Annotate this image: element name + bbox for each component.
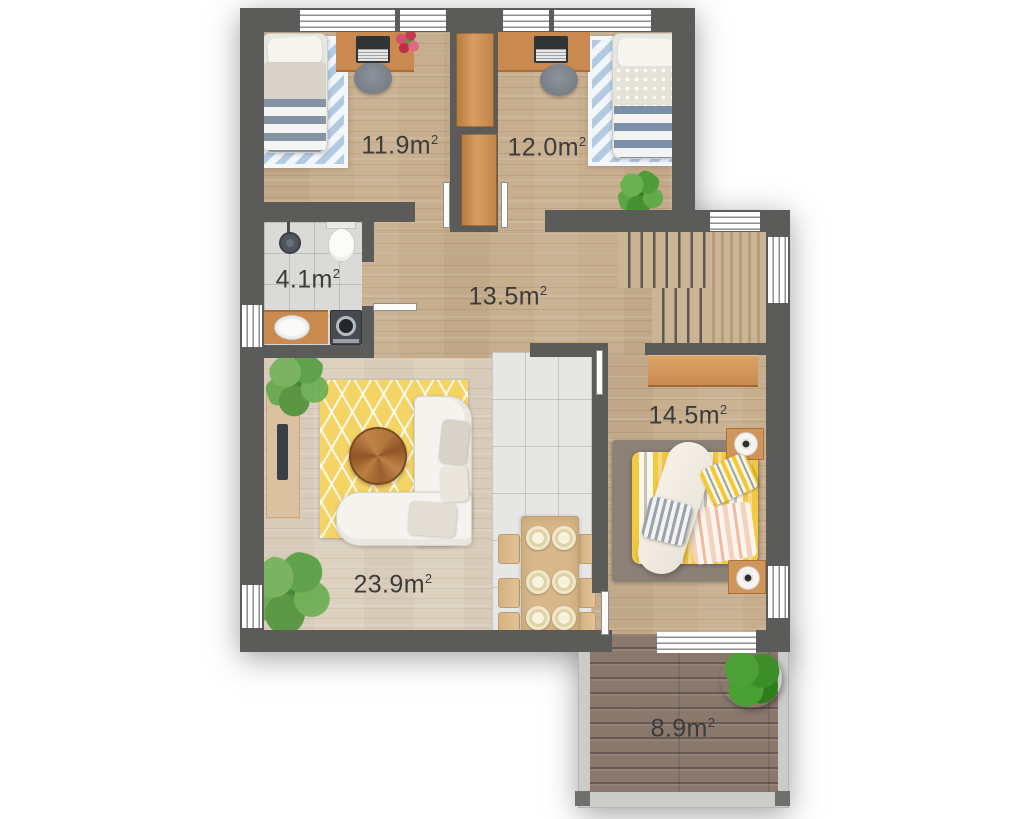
room-area-label: 23.9m2 [353, 571, 432, 600]
door-leaf [373, 303, 417, 311]
bed-duvet-dotted [614, 66, 678, 110]
washing-machine [330, 310, 362, 345]
area-sup: 2 [425, 571, 433, 586]
area-text: 12.0m [507, 134, 578, 162]
toilet-bowl [328, 228, 355, 262]
terrace-post [575, 791, 590, 806]
dining-chair [498, 534, 520, 564]
laptop [356, 36, 390, 63]
sofa-pillow [439, 465, 469, 503]
area-sup: 2 [579, 134, 587, 149]
lamp-shade-top [741, 439, 751, 449]
window [554, 10, 651, 31]
built-in-wardrobe [456, 33, 494, 127]
stair-flight-lower [652, 288, 712, 343]
wall [672, 8, 695, 232]
sofa-pillow [407, 500, 457, 537]
window [768, 566, 788, 618]
wall [645, 343, 766, 355]
place-setting [552, 526, 576, 550]
bed-blanket-striped [264, 99, 326, 152]
bed-pillow [617, 37, 674, 69]
area-sup: 2 [720, 402, 728, 417]
terrace-door-leaf [601, 591, 609, 635]
window [710, 212, 760, 231]
table-lamp [736, 566, 760, 590]
shower-head [279, 232, 301, 254]
place-setting [552, 606, 576, 630]
area-sup: 2 [431, 132, 439, 147]
window [242, 585, 262, 628]
laptop-keyboard [358, 49, 388, 61]
floor-plan: 11.9m2 12.0m2 4.1m2 13.5m2 14.5m2 23.9m2… [0, 0, 1024, 819]
stair-flight-upper [618, 232, 712, 288]
wardrobe [648, 355, 758, 387]
built-in-wardrobe [461, 134, 497, 226]
sink [274, 315, 310, 340]
area-text: 13.5m [468, 283, 539, 311]
window [768, 237, 788, 303]
window [300, 10, 395, 31]
place-setting [526, 606, 550, 630]
stair-landing [712, 232, 766, 343]
door-leaf [596, 350, 603, 395]
window [400, 10, 446, 31]
lamp-shade-top [743, 573, 753, 583]
window [242, 305, 262, 347]
laptop [534, 36, 568, 63]
area-text: 8.9m [651, 715, 708, 743]
window [503, 10, 549, 31]
area-sup: 2 [333, 266, 341, 281]
room-area-label: 13.5m2 [468, 283, 547, 312]
wall [530, 343, 592, 357]
tv [277, 424, 288, 480]
area-text: 4.1m [276, 266, 333, 294]
round-coffee-table [349, 427, 407, 485]
area-text: 11.9m [361, 132, 431, 160]
terrace-post [775, 791, 790, 806]
sofa-pillow [438, 419, 470, 466]
wall [545, 210, 672, 232]
place-setting [526, 526, 550, 550]
door-leaf [443, 182, 450, 228]
washing-machine-panel [333, 339, 359, 343]
table-lamp [734, 432, 758, 456]
area-text: 23.9m [353, 571, 424, 599]
room-area-label: 8.9m2 [651, 715, 716, 744]
laptop-keyboard [536, 49, 566, 61]
potted-plant [266, 352, 330, 418]
area-sup: 2 [708, 715, 716, 730]
bed-duvet [264, 62, 326, 104]
wall [240, 630, 612, 652]
place-setting [526, 570, 550, 594]
washing-machine-door [336, 316, 356, 336]
room-area-label: 11.9m2 [361, 132, 438, 161]
wall [362, 202, 374, 262]
door-leaf [501, 182, 508, 228]
area-sup: 2 [540, 283, 548, 298]
terrace-window [657, 632, 756, 653]
wall [240, 202, 415, 222]
desk-chair [354, 62, 392, 94]
area-text: 14.5m [648, 402, 719, 430]
dining-chair [498, 578, 520, 608]
room-area-label: 14.5m2 [648, 402, 727, 431]
bed-blanket-striped [614, 106, 678, 158]
place-setting [552, 570, 576, 594]
room-area-label: 4.1m2 [276, 266, 341, 295]
desk-chair [540, 64, 578, 96]
bush [720, 648, 782, 708]
wall [756, 630, 790, 652]
room-area-label: 12.0m2 [507, 134, 586, 163]
